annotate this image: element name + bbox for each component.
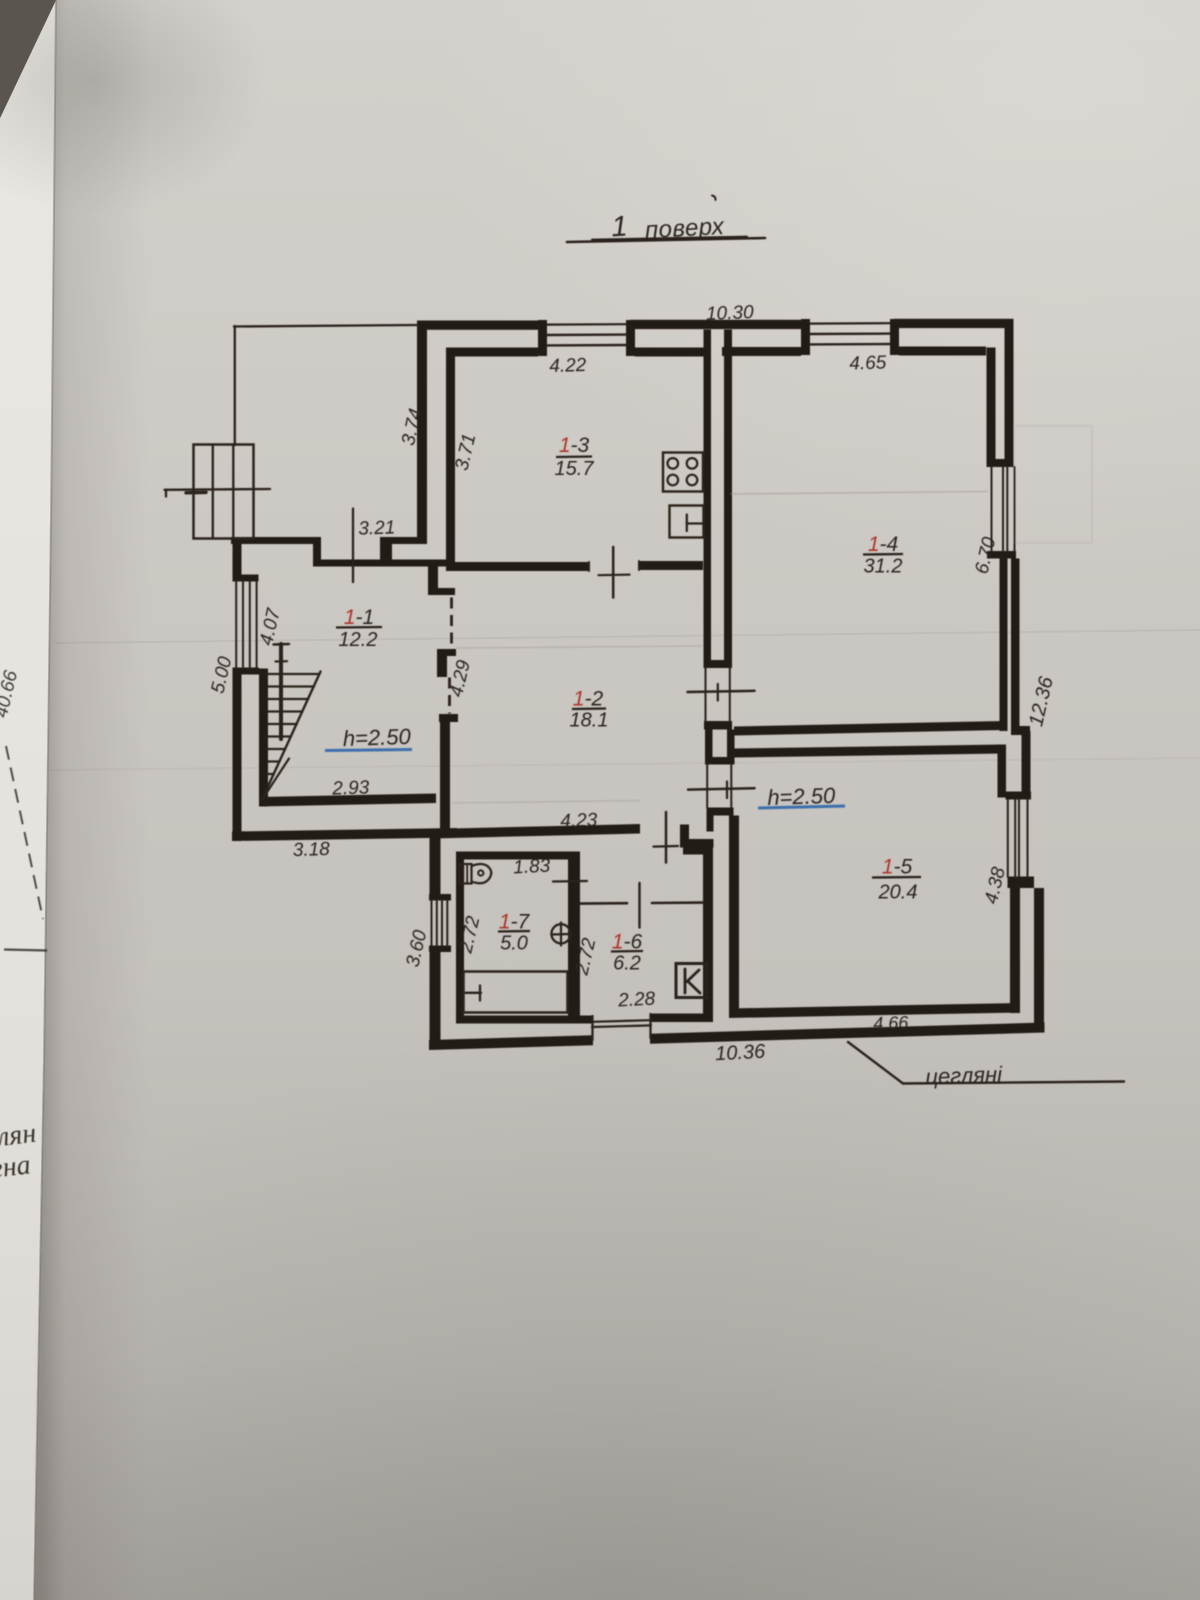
svg-text:31.2: 31.2: [864, 556, 903, 578]
svg-text:h=2.50: h=2.50: [767, 783, 836, 810]
svg-text:2.28: 2.28: [617, 989, 656, 1012]
svg-text:2.93: 2.93: [331, 777, 370, 799]
svg-text:10.30: 10.30: [706, 302, 755, 325]
svg-text:4.65: 4.65: [849, 352, 887, 374]
svg-text:1-4: 1-4: [868, 533, 898, 556]
svg-text:1.83: 1.83: [513, 856, 551, 879]
svg-text:1-1: 1-1: [344, 606, 374, 629]
svg-text:3.18: 3.18: [292, 839, 330, 861]
svg-text:15.7: 15.7: [555, 458, 595, 480]
svg-text:18.1: 18.1: [570, 710, 609, 732]
svg-text:1-5: 1-5: [882, 856, 913, 879]
svg-text:1-6: 1-6: [612, 931, 643, 954]
svg-text:ілян: ілян: [0, 1118, 38, 1154]
svg-text:4.23: 4.23: [560, 810, 598, 832]
svg-text:1-3: 1-3: [559, 434, 590, 457]
svg-text:ена: ена: [0, 1149, 32, 1185]
svg-text:цегляні: цегляні: [925, 1062, 1004, 1090]
svg-text:h=2.50: h=2.50: [342, 724, 411, 751]
svg-text:10.36: 10.36: [715, 1041, 767, 1066]
svg-text:1-7: 1-7: [499, 911, 531, 934]
svg-text:1-2: 1-2: [573, 688, 604, 711]
svg-text:12.2: 12.2: [339, 629, 378, 651]
svg-text:4.22: 4.22: [549, 355, 587, 377]
svg-text:1: 1: [611, 211, 629, 244]
svg-text:20.4: 20.4: [878, 882, 918, 904]
svg-text:6.2: 6.2: [613, 953, 641, 975]
svg-text:5.0: 5.0: [500, 933, 528, 955]
svg-text:3.21: 3.21: [358, 517, 396, 539]
svg-text:поверх: поверх: [644, 213, 725, 244]
svg-text:4.66: 4.66: [873, 1012, 910, 1033]
